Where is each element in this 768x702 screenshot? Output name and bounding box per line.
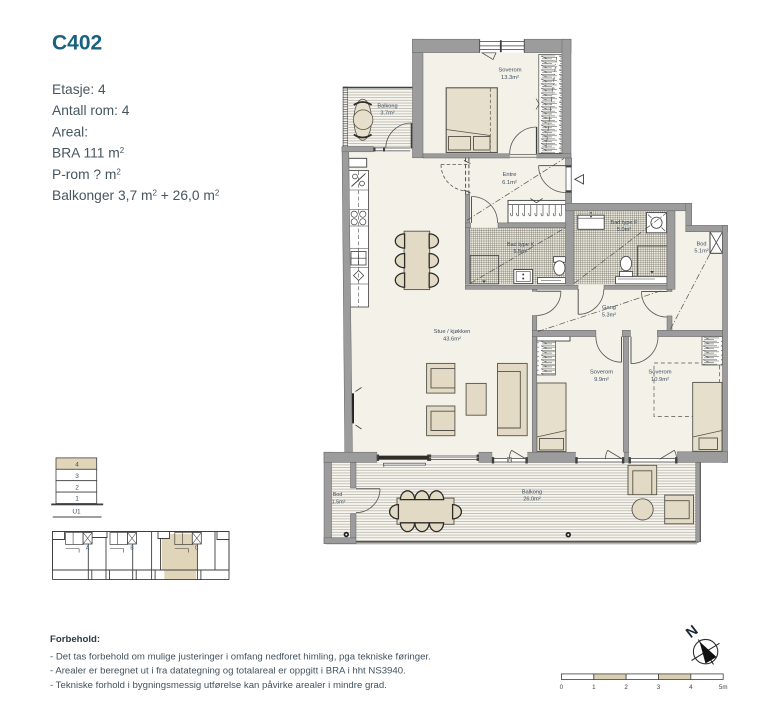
svg-text:26.0m²: 26.0m² (523, 497, 541, 503)
svg-text:- Det tas forbehold om mulige: - Det tas forbehold om mulige justeringe… (50, 651, 431, 662)
svg-text:Soverom: Soverom (498, 68, 521, 74)
svg-text:Soverom: Soverom (590, 370, 613, 376)
svg-text:Bad type F: Bad type F (610, 220, 638, 226)
svg-text:Balkong: Balkong (522, 490, 542, 496)
svg-text:Etasje: 4: Etasje: 4 (52, 82, 106, 97)
svg-text:P-rom ? m2: P-rom ? m2 (52, 167, 121, 182)
svg-text:0: 0 (560, 684, 564, 691)
svg-text:3: 3 (75, 473, 79, 480)
svg-text:Antall rom: 4: Antall rom: 4 (52, 103, 130, 118)
svg-text:Bod: Bod (333, 492, 343, 498)
svg-text:5m: 5m (719, 684, 728, 691)
svg-text:5.0m²: 5.0m² (617, 227, 631, 233)
svg-text:C: C (195, 546, 199, 552)
svg-text:Soverom: Soverom (648, 370, 671, 376)
svg-text:Forbehold:: Forbehold: (50, 634, 100, 645)
svg-text:6.1m²: 6.1m² (502, 180, 517, 186)
svg-text:Areal:: Areal: (52, 124, 88, 139)
svg-text:3.7m²: 3.7m² (380, 111, 394, 117)
svg-text:- Arealer er beregnet ut i fra: - Arealer er beregnet ut i fra datategni… (50, 666, 406, 677)
svg-text:C402: C402 (52, 32, 102, 55)
svg-text:1: 1 (592, 684, 596, 691)
svg-text:1.5m²: 1.5m² (332, 500, 346, 506)
svg-text:10.9m²: 10.9m² (651, 377, 669, 383)
svg-text:2: 2 (75, 484, 79, 491)
svg-text:Stue / kjøkken: Stue / kjøkken (434, 329, 471, 335)
svg-text:Entre: Entre (503, 172, 517, 178)
svg-text:Gang: Gang (602, 305, 616, 311)
svg-text:Bod: Bod (697, 242, 707, 248)
svg-text:5.1m²: 5.1m² (694, 249, 708, 255)
svg-text:- Tekniske forhold i bygningsm: - Tekniske forhold i bygningsmessig utfø… (50, 680, 387, 691)
svg-text:9.9m²: 9.9m² (594, 377, 609, 383)
svg-text:BRA 111 m2: BRA 111 m2 (52, 146, 125, 161)
svg-text:Balkong: Balkong (377, 104, 397, 110)
svg-text:Balkonger 3,7 m2 + 26,0 m2: Balkonger 3,7 m2 + 26,0 m2 (52, 188, 220, 203)
svg-text:4: 4 (75, 462, 79, 469)
svg-text:5.3m²: 5.3m² (602, 313, 616, 319)
svg-text:43.6m²: 43.6m² (443, 337, 461, 343)
svg-text:1: 1 (75, 496, 79, 503)
svg-text:2: 2 (624, 684, 628, 691)
svg-text:13.3m²: 13.3m² (501, 75, 519, 81)
svg-text:Bad type K: Bad type K (507, 242, 535, 248)
svg-text:4: 4 (689, 684, 693, 691)
svg-text:3: 3 (657, 684, 661, 691)
svg-text:U1: U1 (72, 509, 81, 516)
